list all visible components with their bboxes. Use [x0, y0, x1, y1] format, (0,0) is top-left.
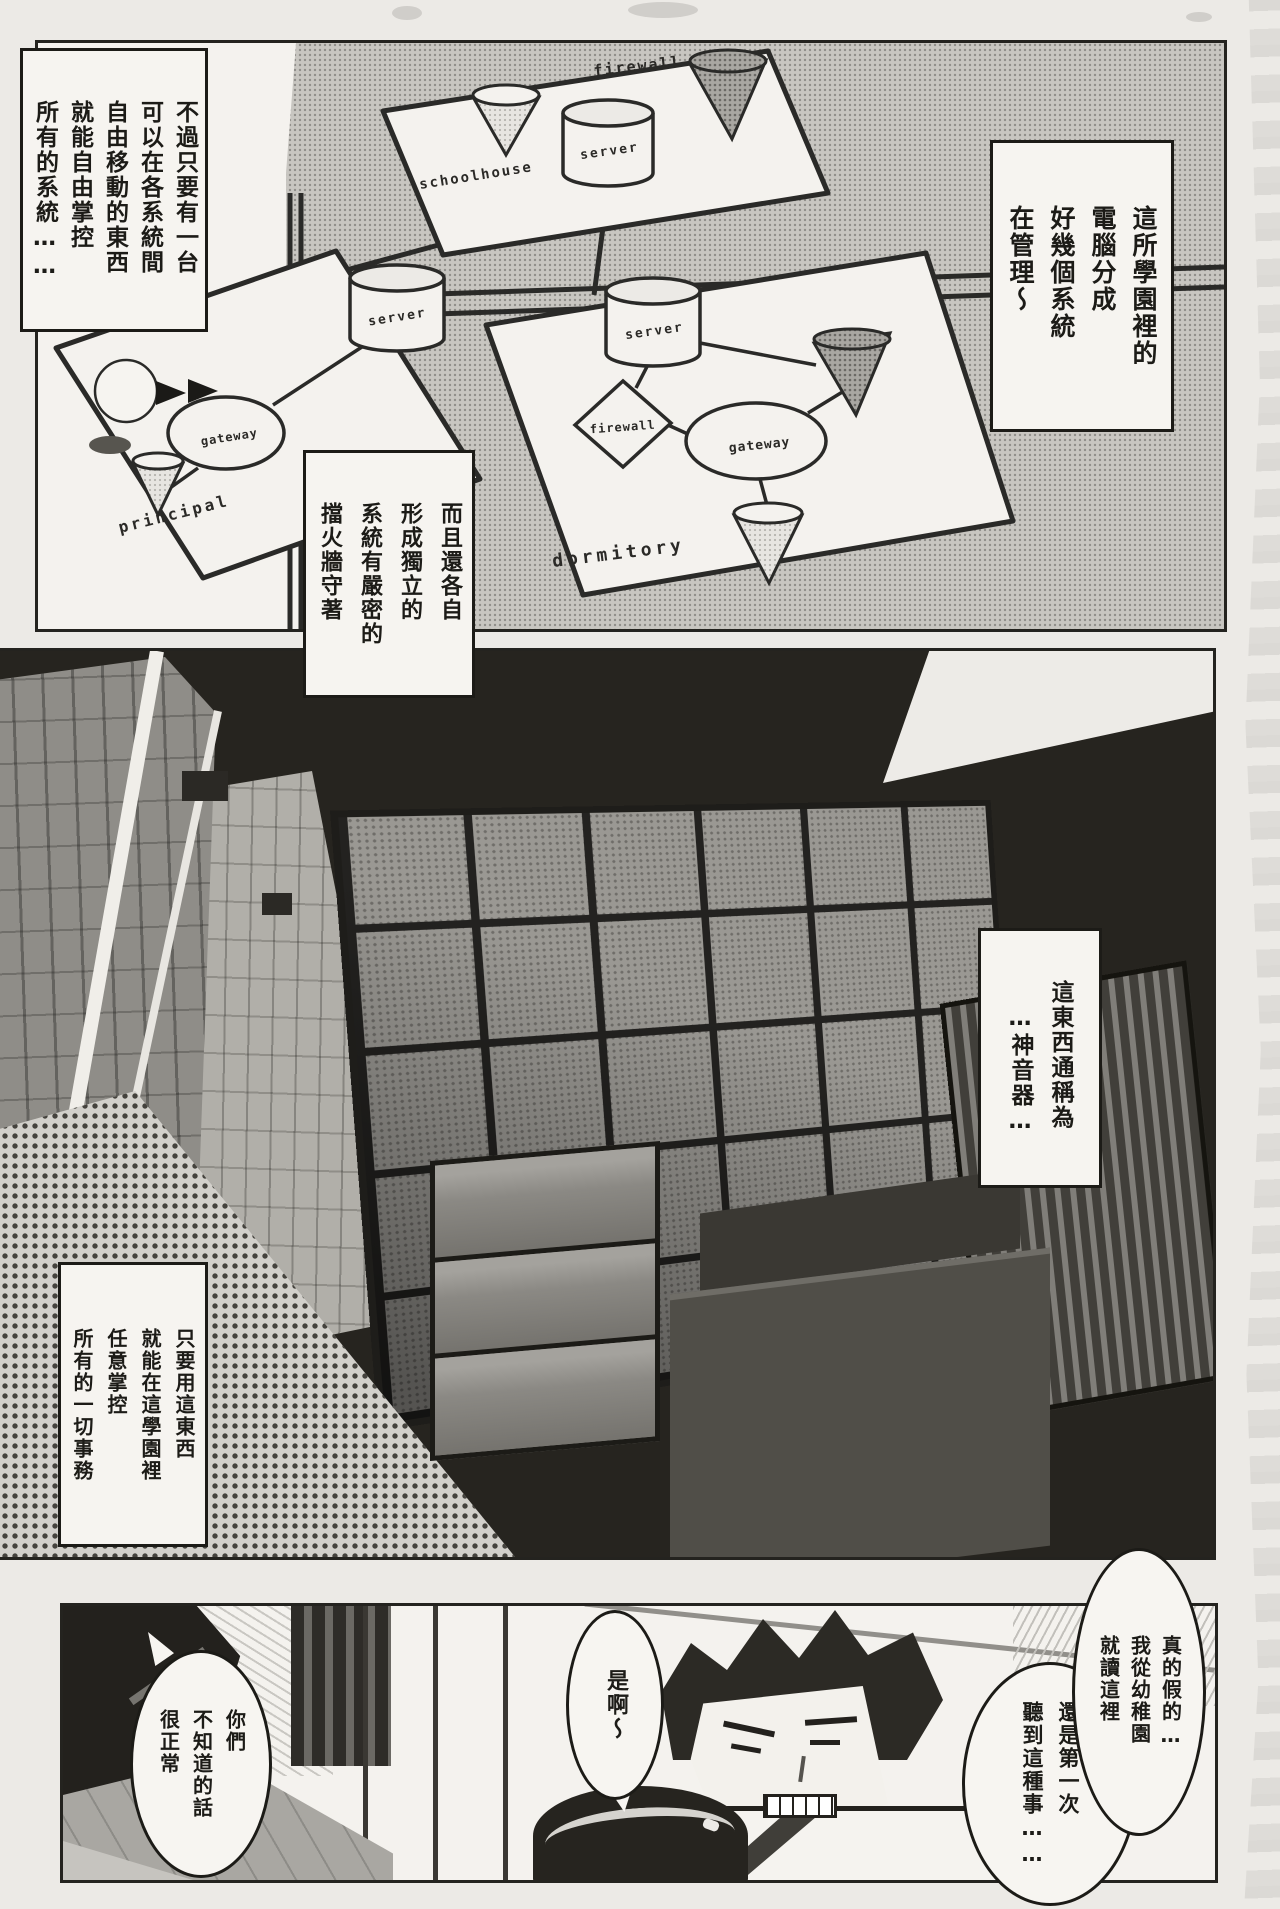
boy-gritted-teeth — [763, 1794, 837, 1818]
dark-desk — [670, 1248, 1050, 1560]
shadow-ellipse — [89, 436, 131, 454]
caption-text: 而且還各自 形成獨立的 系統有嚴密的 擋火牆守著 — [309, 502, 469, 646]
machine-window — [262, 893, 292, 915]
caption-box-device-name: 這東西通稱為 …神音器… — [978, 928, 1102, 1188]
drawer-cabinet — [430, 1141, 660, 1461]
server-principal — [350, 265, 444, 351]
scan-smudge — [628, 2, 698, 18]
manga-page: { "page": {"kind": "scanned manga page",… — [0, 0, 1280, 1909]
drawer — [435, 1340, 655, 1456]
balloon-text: 真的假的… 我從幼稚園 就讀這裡 — [1093, 1635, 1186, 1749]
caption-box-control: 只要用這東西 就能在這學園裡 任意掌控 所有的一切事務 — [58, 1262, 208, 1547]
server-dorm — [606, 278, 700, 366]
speech-balloon-surprised: 真的假的… 我從幼稚園 就讀這裡 — [1072, 1548, 1206, 1836]
machine-window — [182, 771, 228, 801]
caption-text: 不過只要有一台 可以在各系統間 自由移動的東西 就能自由掌控 所有的系統…… — [27, 100, 202, 281]
balloon-text: 是啊～ — [600, 1669, 630, 1741]
caption-text: 這東西通稱為 …神音器… — [1000, 980, 1080, 1136]
boy-eye — [810, 1740, 840, 1745]
scan-smudge — [1186, 12, 1212, 22]
caption-text: 只要用這東西 就能在這學園裡 任意掌控 所有的一切事務 — [65, 1328, 201, 1482]
speech-balloon-yeah: 是啊～ — [566, 1610, 664, 1800]
roaming-sphere — [95, 360, 157, 422]
caption-box-managed-systems: 這所學園裡的 電腦分成 好幾個系統 在管理～ — [990, 140, 1174, 432]
caption-box-firewall: 而且還各自 形成獨立的 系統有嚴密的 擋火牆守著 — [303, 450, 475, 698]
server-schoolhouse — [563, 100, 653, 186]
scan-smudge — [392, 6, 422, 20]
door-frame — [363, 1606, 513, 1883]
ceiling-light-wedge — [883, 651, 1213, 783]
balloon-text: 你們 不知道的話 很正常 — [152, 1709, 251, 1819]
speech-balloon-normal: 你們 不知道的話 很正常 — [130, 1650, 272, 1878]
caption-box-systems: 不過只要有一台 可以在各系統間 自由移動的東西 就能自由掌控 所有的系統…… — [20, 48, 208, 332]
caption-text: 這所學園裡的 電腦分成 好幾個系統 在管理～ — [1000, 205, 1164, 367]
torn-paper-edge — [1232, 0, 1280, 1909]
